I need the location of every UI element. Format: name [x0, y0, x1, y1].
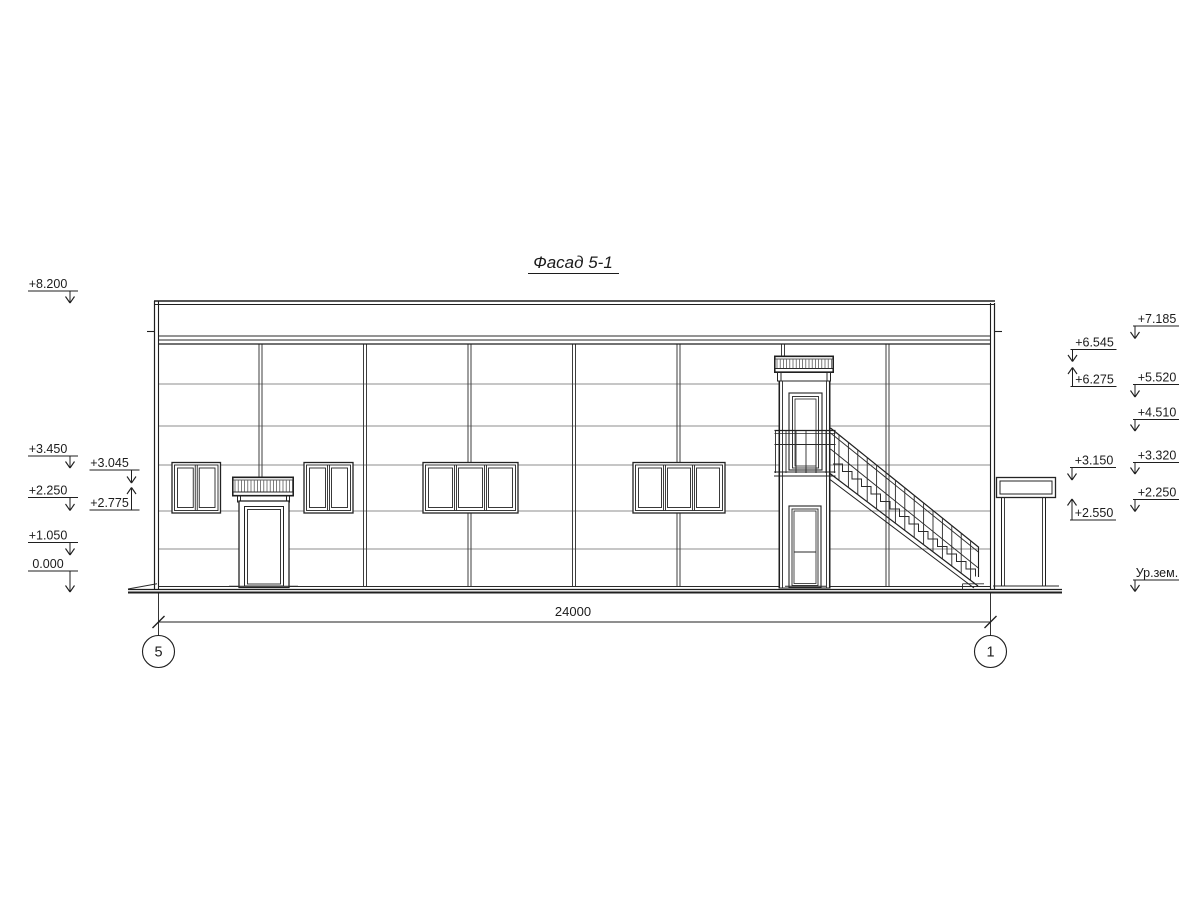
level-mark-value: +2.250	[1138, 486, 1177, 500]
level-arrow-icon	[70, 462, 75, 469]
level-arrow-icon	[127, 477, 132, 484]
level-arrow-icon	[1135, 505, 1140, 512]
level-mark: +5.520	[1131, 371, 1180, 398]
drawing-title: Фасад 5-1	[528, 253, 619, 274]
level-mark: +3.150	[1068, 454, 1117, 481]
external-staircase	[830, 428, 984, 589]
level-arrow-icon	[1135, 585, 1140, 592]
level-arrow-icon	[1131, 391, 1136, 398]
level-mark: +6.545	[1068, 336, 1117, 362]
level-arrow-icon	[66, 549, 71, 556]
level-arrow-icon	[1131, 425, 1136, 432]
window-2	[304, 463, 353, 514]
level-arrow-icon	[70, 504, 75, 511]
level-arrow-icon	[70, 297, 75, 304]
level-mark: +7.185	[1131, 312, 1180, 339]
level-arrow-icon	[1072, 499, 1077, 506]
level-mark: +6.275	[1068, 368, 1117, 387]
level-arrow-icon	[127, 488, 132, 495]
level-mark-value: +3.320	[1138, 449, 1177, 463]
level-arrow-icon	[66, 586, 71, 593]
level-arrow-icon	[1068, 499, 1073, 506]
stair-stringer	[830, 474, 978, 587]
stair-tower	[774, 356, 836, 588]
level-mark: Ур.зем.	[1131, 566, 1180, 592]
ground-slope-line	[128, 584, 157, 589]
level-mark-value: +3.150	[1075, 454, 1114, 468]
upper-door-frame	[789, 393, 822, 470]
level-arrow-icon	[66, 462, 71, 469]
level-arrow-icon	[1135, 391, 1140, 398]
level-arrow-icon	[132, 477, 137, 484]
level-mark-value: +1.050	[29, 529, 68, 543]
window-1	[172, 463, 221, 514]
level-mark-value: +7.185	[1138, 312, 1177, 326]
level-mark: +8.200	[28, 277, 78, 303]
level-mark: +2.550	[1068, 499, 1117, 520]
level-mark: +4.510	[1131, 406, 1180, 432]
windows-and-doors	[172, 463, 1059, 588]
level-arrow-icon	[1135, 332, 1140, 339]
level-mark: +2.250	[28, 484, 78, 511]
level-mark-value: Ур.зем.	[1136, 566, 1178, 580]
level-mark-value: +6.275	[1075, 373, 1114, 387]
level-mark: +2.775	[90, 488, 140, 511]
level-mark-value: +3.045	[90, 456, 129, 470]
level-arrow-icon	[1131, 505, 1136, 512]
level-mark-value: +3.450	[29, 442, 68, 456]
level-mark: 0.000	[28, 557, 78, 592]
window-frame	[423, 463, 518, 514]
axis-label-5: 5	[154, 645, 162, 661]
level-arrow-icon	[1131, 468, 1136, 475]
level-mark-value: +8.200	[29, 277, 68, 291]
window-frame	[633, 463, 725, 514]
level-arrow-icon	[1068, 355, 1073, 362]
elevation-level-marks: +8.200+3.450+2.250+1.0500.000+3.045+2.77…	[28, 277, 1179, 592]
level-arrow-icon	[1072, 474, 1077, 481]
level-arrow-icon	[1135, 425, 1140, 432]
level-mark-value: +2.550	[1075, 506, 1114, 520]
dimension-value: 24000	[555, 604, 591, 619]
page-title: Фасад 5-1	[533, 253, 613, 272]
level-arrow-icon	[70, 586, 75, 593]
window-frame	[172, 463, 221, 514]
entrance-door-frame	[239, 501, 289, 588]
window-4	[633, 463, 725, 514]
level-arrow-icon	[1131, 585, 1136, 592]
level-mark: +3.320	[1131, 449, 1180, 475]
window-3	[423, 463, 518, 514]
level-arrow-icon	[1131, 332, 1136, 339]
level-arrow-icon	[1068, 474, 1073, 481]
dimension-line: 24000 5 1	[143, 593, 1007, 668]
level-arrow-icon	[66, 297, 71, 304]
level-mark-value: +4.510	[1138, 406, 1177, 420]
level-mark: +2.250	[1131, 486, 1180, 512]
level-arrow-icon	[1068, 368, 1073, 375]
tower-canopy-post	[778, 373, 782, 382]
level-mark: +1.050	[28, 529, 78, 556]
window-frame	[304, 463, 353, 514]
facade-drawing: Фасад 5-1 +8.200+3.450+2.250+1.0500.000+…	[0, 0, 1200, 900]
level-arrow-icon	[66, 504, 71, 511]
level-arrow-icon	[70, 549, 75, 556]
level-arrow-icon	[1073, 355, 1078, 362]
level-mark-value: 0.000	[32, 557, 63, 571]
level-mark: +3.450	[28, 442, 78, 468]
stair-steps	[833, 464, 976, 577]
stair-stringer	[830, 480, 974, 589]
level-mark-value: +5.520	[1138, 371, 1177, 385]
side-canopy	[993, 478, 1059, 587]
level-mark-value: +2.775	[90, 496, 129, 510]
tower-canopy-post	[827, 373, 831, 382]
level-mark: +3.045	[90, 456, 140, 483]
main-entrance	[229, 477, 298, 588]
level-mark-value: +6.545	[1075, 336, 1114, 350]
axis-label-1: 1	[986, 645, 994, 661]
level-arrow-icon	[132, 488, 137, 495]
level-mark-value: +2.250	[29, 484, 68, 498]
level-arrow-icon	[1135, 468, 1140, 475]
